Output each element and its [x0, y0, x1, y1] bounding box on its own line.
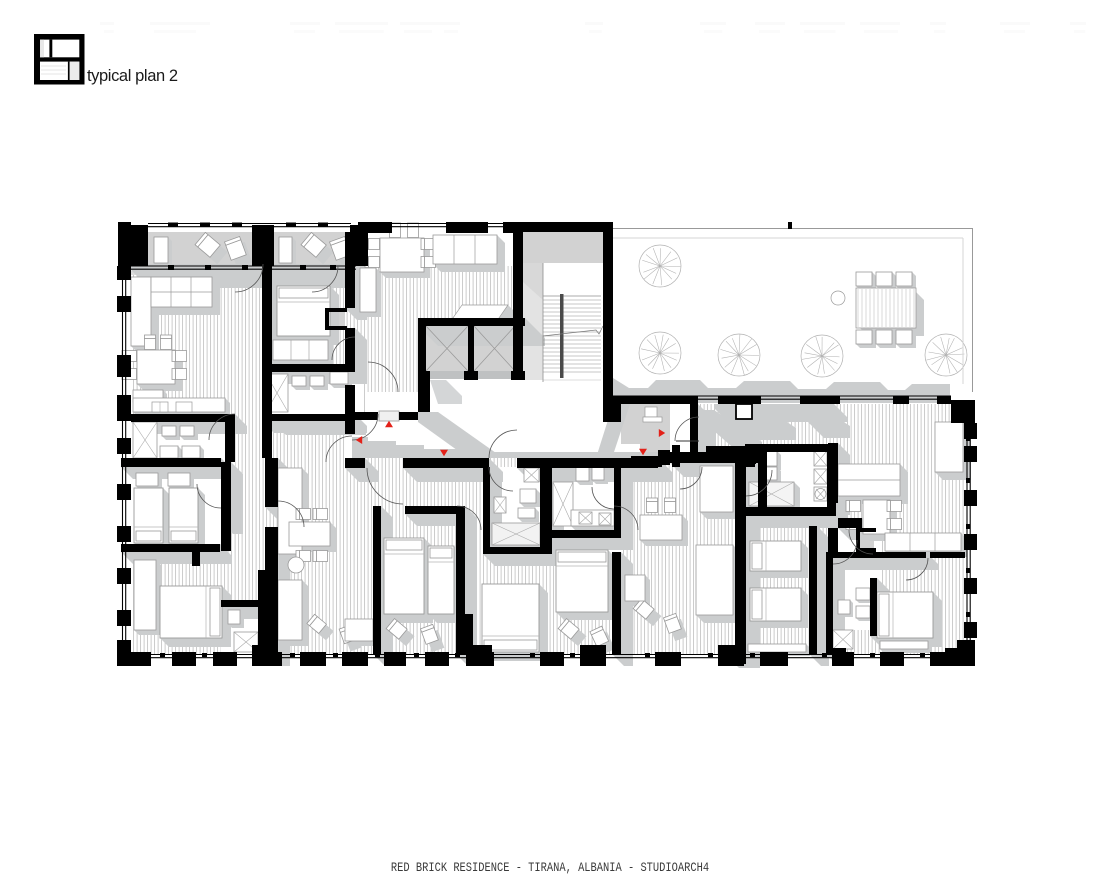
svg-text:RED BRICK RESIDENCE - TIRANA,: RED BRICK RESIDENCE - TIRANA, ALBANIA - … [391, 860, 709, 875]
svg-text:typical plan 2: typical plan 2 [87, 67, 178, 85]
